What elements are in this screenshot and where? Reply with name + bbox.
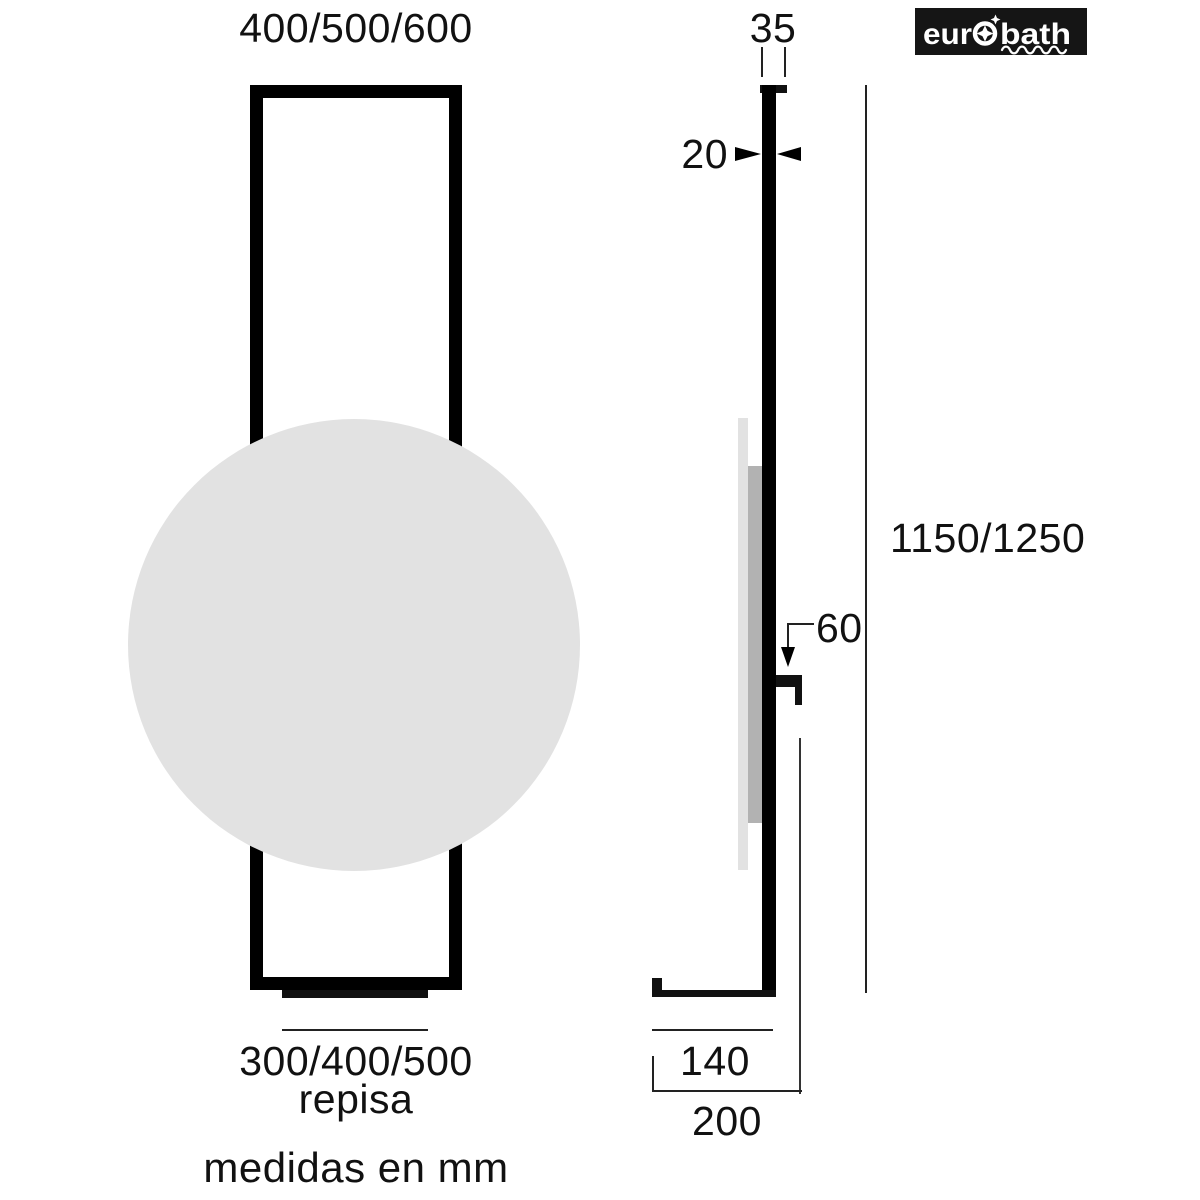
front-width-label: 400/500/600: [156, 8, 556, 49]
mirror-circle: [128, 419, 580, 871]
dimension-tick: [652, 1056, 654, 1092]
side-thickness-label: 20: [620, 134, 728, 175]
logo-text-right: bath: [1000, 18, 1071, 51]
side-top-depth-label: 35: [723, 8, 823, 49]
brand-logo: eur bath: [915, 8, 1087, 55]
side-panel-bar: [762, 85, 776, 997]
front-shelf-bar: [282, 990, 428, 998]
side-backing-strip: [748, 466, 762, 823]
shelf-depth-label: 140: [635, 1041, 795, 1082]
side-shelf-bottom: [652, 990, 776, 997]
arrow-right-icon: [735, 147, 761, 161]
height-dim-line: [865, 85, 867, 993]
arrow-down-icon: [781, 647, 795, 667]
height-label: 1150/1250: [890, 518, 1085, 559]
extension-line: [761, 47, 763, 77]
logo-text-left: eur: [923, 18, 972, 51]
total-depth-dim-line: [652, 1090, 802, 1092]
arrow-left-icon: [777, 147, 801, 161]
total-depth-label: 200: [647, 1101, 807, 1142]
front-shelf-dim-line: [282, 1029, 428, 1031]
technical-drawing-canvas: 400/500/600 300/400/500 repisa 35 20 60 …: [0, 0, 1200, 1200]
shelf-depth-dim-line: [652, 1029, 773, 1031]
side-hook-horizontal: [776, 675, 802, 687]
side-shelf-lip: [652, 978, 662, 997]
side-hook-vertical: [795, 687, 802, 705]
units-note: medidas en mm: [156, 1147, 556, 1189]
extension-line: [799, 738, 801, 1094]
front-shelf-caption: repisa: [156, 1079, 556, 1120]
hook-offset-label: 60: [816, 608, 863, 649]
leader-line: [788, 623, 814, 625]
extension-line: [784, 47, 786, 77]
side-mirror-strip: [738, 418, 748, 870]
